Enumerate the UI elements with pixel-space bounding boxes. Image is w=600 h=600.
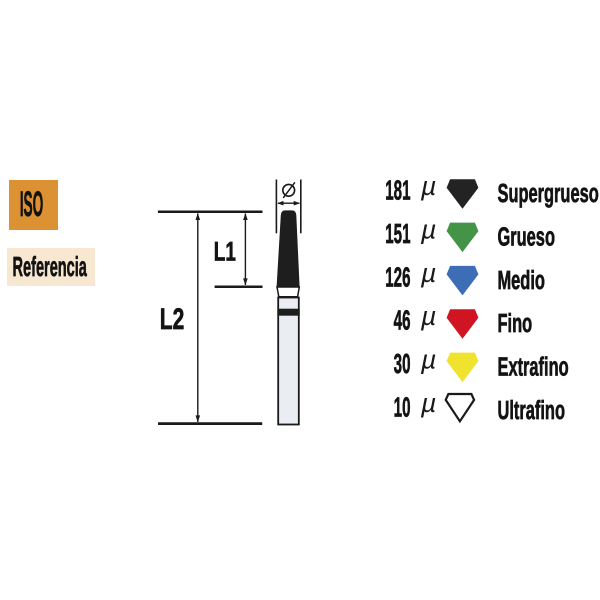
svg-text:Grueso: Grueso bbox=[498, 223, 555, 252]
svg-text:µ: µ bbox=[420, 345, 437, 375]
svg-text:µ: µ bbox=[420, 388, 437, 418]
svg-text:Medio: Medio bbox=[498, 266, 545, 295]
svg-text:µ: µ bbox=[420, 301, 437, 331]
svg-text:µ: µ bbox=[420, 171, 437, 201]
svg-text:Supergrueso: Supergrueso bbox=[498, 180, 599, 209]
svg-text:30: 30 bbox=[394, 348, 411, 379]
svg-text:L1: L1 bbox=[214, 236, 236, 266]
svg-text:µ: µ bbox=[420, 258, 437, 288]
svg-text:Extrafino: Extrafino bbox=[498, 353, 569, 382]
svg-text:10: 10 bbox=[394, 392, 411, 423]
svg-text:µ: µ bbox=[420, 215, 437, 245]
svg-text:ISO: ISO bbox=[20, 184, 44, 224]
svg-text:Fino: Fino bbox=[498, 310, 533, 339]
svg-text:Ultrafino: Ultrafino bbox=[498, 396, 565, 425]
svg-text:126: 126 bbox=[385, 262, 410, 293]
svg-text:L2: L2 bbox=[160, 304, 184, 336]
svg-text:181: 181 bbox=[385, 175, 410, 206]
svg-text:46: 46 bbox=[394, 305, 411, 336]
svg-text:Referencia: Referencia bbox=[13, 251, 88, 282]
svg-text:151: 151 bbox=[385, 218, 410, 249]
